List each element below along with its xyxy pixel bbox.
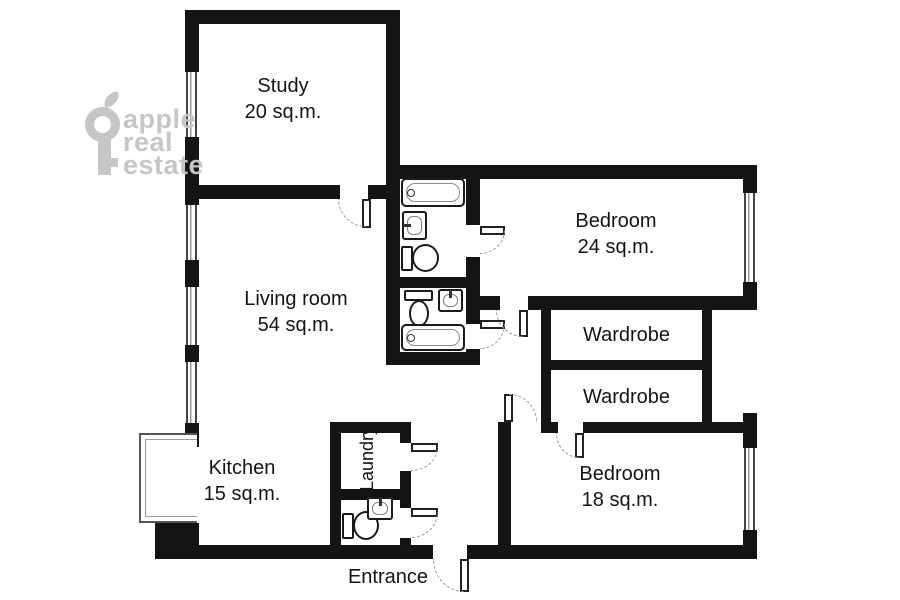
room-area: 18 sq.m.	[525, 487, 715, 513]
wall	[528, 296, 757, 310]
door-swing-arc	[480, 324, 505, 349]
room-label-laundry: Laundry	[338, 426, 398, 490]
window	[186, 362, 197, 423]
wall	[702, 308, 712, 422]
wall	[185, 185, 340, 199]
room-area: 54 sq.m.	[201, 312, 391, 338]
door-swing-arc	[509, 394, 537, 422]
door-swing-arc	[556, 433, 579, 458]
toilet-bowl-icon	[412, 244, 439, 272]
window	[744, 448, 755, 530]
room-name: Bedroom	[521, 208, 711, 234]
door-swing-arc	[338, 199, 366, 227]
wall	[185, 10, 199, 72]
leaf-icon	[101, 91, 121, 109]
sink-icon	[367, 497, 393, 520]
brand-word: estate	[123, 154, 204, 177]
room-name: Wardrobe	[551, 384, 702, 410]
wall	[466, 257, 480, 324]
door-swing-arc	[411, 512, 438, 538]
wall	[466, 296, 500, 310]
wall	[498, 422, 511, 559]
door-swing-arc	[480, 230, 505, 254]
window	[186, 287, 197, 345]
room-name: Bedroom	[525, 461, 715, 487]
wall	[185, 345, 199, 362]
wall	[541, 422, 558, 433]
wall	[185, 10, 400, 24]
room-area: 24 sq.m.	[521, 234, 711, 260]
sink-icon	[402, 211, 427, 240]
toilet-bowl-icon	[409, 300, 429, 327]
bathtub-icon	[401, 178, 465, 207]
room-area: 20 sq.m.	[188, 99, 378, 125]
room-name: Kitchen	[152, 455, 332, 481]
sink-icon	[438, 289, 463, 312]
wall	[386, 352, 480, 365]
room-name: Study	[188, 73, 378, 99]
door-swing-arc	[411, 447, 438, 471]
wall	[185, 260, 199, 287]
room-label-wardrobe-1: Wardrobe	[551, 322, 702, 348]
room-label-study: Study 20 sq.m.	[188, 73, 378, 125]
window	[744, 193, 755, 282]
room-label-bedroom-18: Bedroom 18 sq.m.	[525, 461, 715, 513]
room-name: Living room	[201, 286, 391, 312]
wall	[400, 422, 411, 443]
room-area: 15 sq.m.	[152, 481, 332, 507]
wall	[743, 413, 757, 448]
entrance-label: Entrance	[328, 564, 448, 590]
wall	[386, 277, 480, 288]
room-label-bedroom-24: Bedroom 24 sq.m.	[521, 208, 711, 260]
wall	[368, 185, 400, 199]
room-label-living-room: Living room 54 sq.m.	[201, 286, 391, 338]
brand-watermark: apple real estate	[82, 90, 212, 185]
room-label-kitchen: Kitchen 15 sq.m.	[152, 455, 332, 507]
window	[186, 205, 197, 260]
wall	[743, 165, 757, 193]
floor-plan: Study 20 sq.m. Living room 54 sq.m. Bedr…	[0, 0, 900, 600]
wall	[400, 538, 411, 559]
wall	[155, 545, 433, 559]
wall	[583, 422, 743, 433]
wall	[743, 530, 757, 559]
room-name: Wardrobe	[551, 322, 702, 348]
wall	[466, 165, 480, 225]
room-label-wardrobe-2: Wardrobe	[551, 384, 702, 410]
room-name: Laundry	[358, 425, 379, 490]
wall	[541, 360, 712, 370]
wall	[386, 165, 757, 179]
bathtub-icon	[401, 324, 465, 351]
